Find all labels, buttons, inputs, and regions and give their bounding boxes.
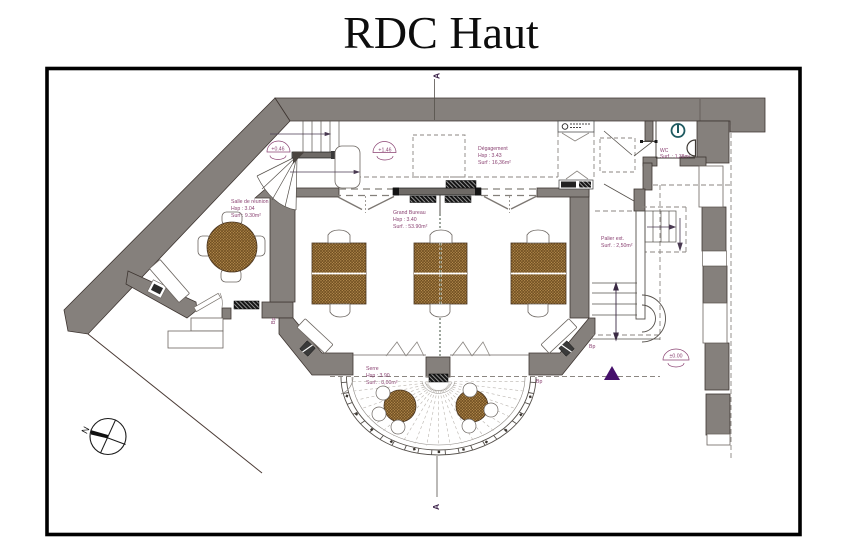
svg-text:+0.46: +0.46	[271, 147, 284, 153]
svg-text:±0.00: ±0.00	[670, 354, 683, 360]
svg-text:Bp: Bp	[536, 379, 542, 385]
svg-text:Hsp : 3.40: Hsp : 3.40	[393, 217, 417, 223]
svg-text:+1.46: +1.46	[378, 148, 391, 154]
svg-text:Serre: Serre	[366, 366, 379, 372]
svg-text:Surf : 9.30m²: Surf : 9.30m²	[231, 213, 261, 219]
svg-text:Surf. : 1,38m²: Surf. : 1,38m²	[660, 154, 691, 160]
svg-text:Hsp : 3.04: Hsp : 3.04	[231, 206, 255, 212]
svg-text:RDC Haut: RDC Haut	[343, 7, 539, 58]
svg-text:Bp: Bp	[271, 318, 277, 324]
svg-text:Palier ext.: Palier ext.	[601, 236, 624, 242]
svg-text:Surf. : 2,50m²: Surf. : 2,50m²	[601, 243, 633, 249]
svg-text:Surf : 16,36m²: Surf : 16,36m²	[478, 160, 511, 166]
svg-text:Surf. : 8,00m²: Surf. : 8,00m²	[366, 380, 398, 386]
svg-text:Grand Bureau: Grand Bureau	[393, 210, 426, 216]
svg-text:Surf. : 53.90m²: Surf. : 53.90m²	[393, 224, 428, 230]
svg-text:Hsp : 3.43: Hsp : 3.43	[478, 153, 502, 159]
svg-text:Bp: Bp	[589, 344, 595, 350]
svg-text:Hsp : 3.90: Hsp : 3.90	[366, 373, 390, 379]
svg-text:Salle de réunion: Salle de réunion	[231, 199, 269, 205]
svg-text:A: A	[432, 73, 442, 79]
svg-text:Dégagement: Dégagement	[478, 146, 508, 152]
svg-text:A: A	[431, 504, 441, 510]
